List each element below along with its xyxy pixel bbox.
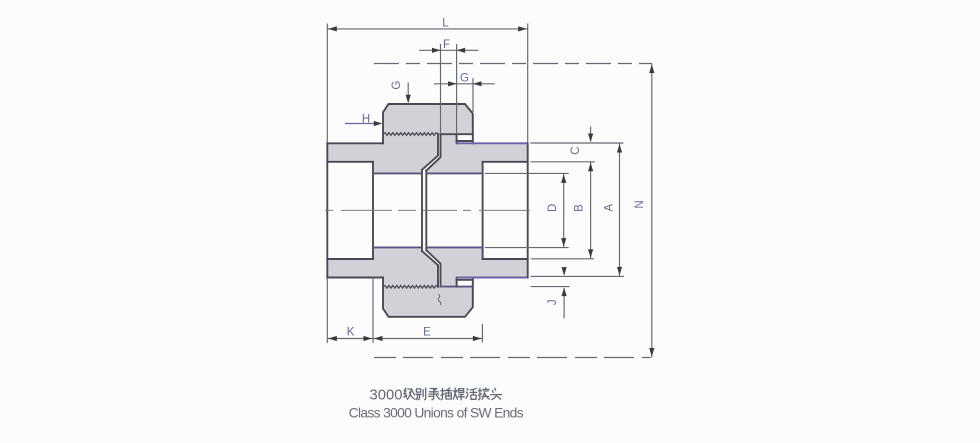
svg-text:J: J [547,299,559,305]
svg-text:G: G [391,81,403,90]
svg-text:D: D [547,204,559,212]
svg-text:C: C [570,146,582,154]
svg-text:L: L [442,18,449,30]
svg-text:G: G [460,73,469,85]
svg-text:3000: 3000 [370,387,403,403]
svg-text:E: E [423,327,431,339]
svg-text:Class 3000 Unions of SW Ends: Class 3000 Unions of SW Ends [349,406,524,421]
svg-text:K: K [347,327,355,339]
svg-text:N: N [634,200,646,208]
svg-text:B: B [574,204,586,212]
svg-text:H: H [362,113,370,125]
svg-text:A: A [603,203,615,211]
svg-text:F: F [443,39,450,51]
